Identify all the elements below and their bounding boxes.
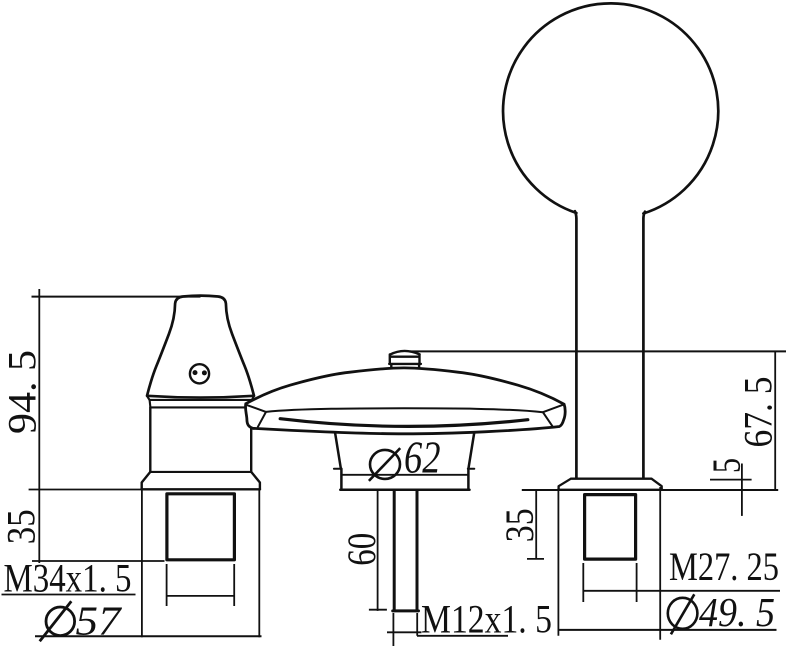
svg-text:57: 57 — [76, 598, 123, 644]
svg-text:67. 5: 67. 5 — [736, 377, 781, 448]
svg-text:62: 62 — [404, 432, 441, 483]
svg-text:35: 35 — [497, 508, 542, 542]
svg-text:M34x1. 5: M34x1. 5 — [4, 555, 132, 600]
svg-text:M12x1. 5: M12x1. 5 — [421, 597, 552, 642]
svg-text:60: 60 — [339, 533, 384, 566]
svg-text:35: 35 — [0, 509, 44, 544]
svg-text:49. 5: 49. 5 — [699, 589, 775, 635]
svg-text:M27. 25: M27. 25 — [669, 544, 779, 589]
svg-text:5: 5 — [704, 458, 749, 473]
svg-text:94. 5: 94. 5 — [0, 350, 45, 434]
